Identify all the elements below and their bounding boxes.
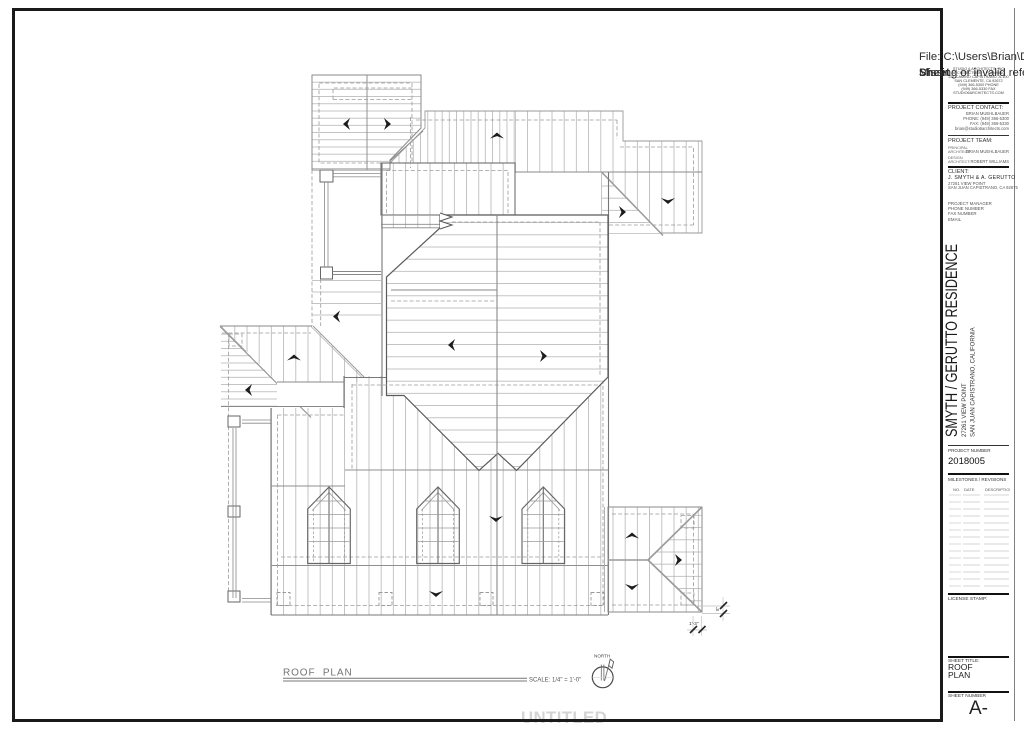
svg-text:SAN JUAN CAPISTRANO, CALIFORNI: SAN JUAN CAPISTRANO, CALIFORNIA xyxy=(971,327,977,437)
svg-text:5": 5" xyxy=(715,606,720,611)
svg-text:DATE: DATE xyxy=(964,487,975,492)
svg-text:SMYTH / GERUTTO RESIDENCE: SMYTH / GERUTTO RESIDENCE xyxy=(943,244,961,437)
svg-text:ROOF PLAN: ROOF PLAN xyxy=(283,668,353,679)
svg-text:NO.: NO. xyxy=(953,487,960,492)
svg-text:DESCRIPTION: DESCRIPTION xyxy=(985,487,1010,492)
svg-text:27261 VIEW POINT: 27261 VIEW POINT xyxy=(962,383,968,437)
svg-text:SCALE: 1/4" = 1'-0": SCALE: 1/4" = 1'-0" xyxy=(529,678,581,684)
svg-text:1'-3": 1'-3" xyxy=(689,621,699,627)
svg-text:NORTH: NORTH xyxy=(594,654,610,659)
